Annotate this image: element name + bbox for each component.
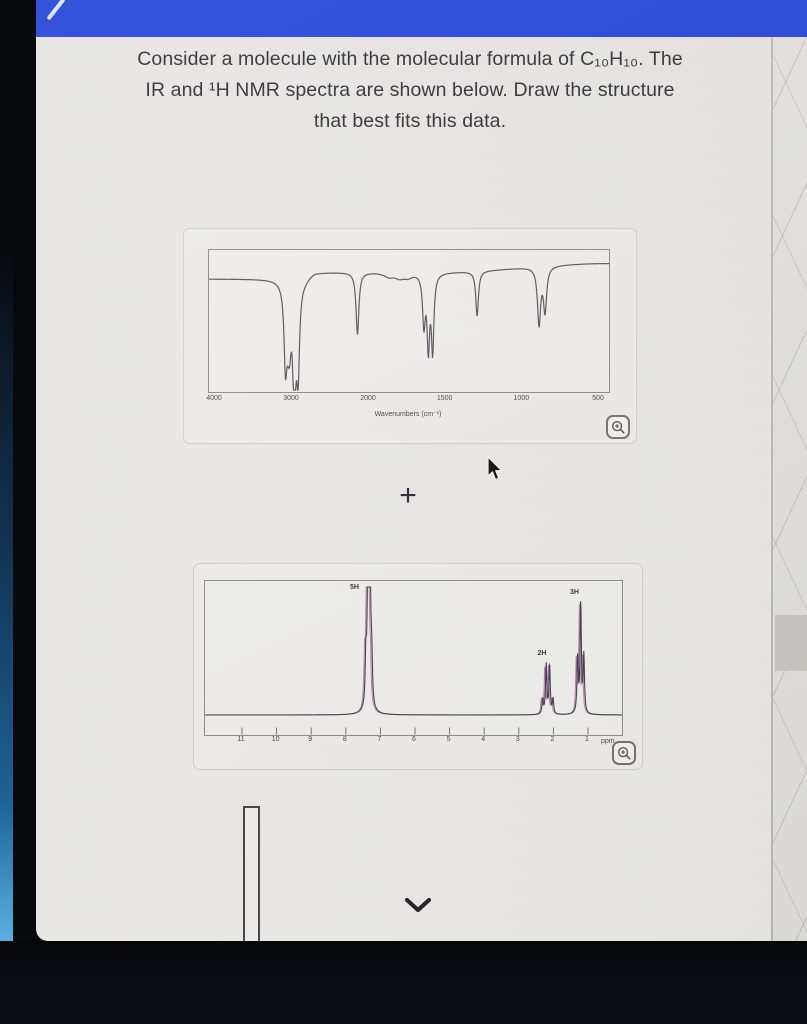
- nmr-axis-tick-label: 7: [371, 736, 387, 743]
- nmr-axis-tick-label: 2: [544, 736, 560, 743]
- photo-edge-light: [0, 240, 13, 1024]
- nmr-axis-tick-label: 6: [406, 736, 422, 743]
- ir-x-axis-title: Wavenumbers (cm⁻¹): [208, 410, 608, 418]
- right-side-rail: [771, 37, 807, 941]
- nmr-axis-tick-label: 9: [302, 736, 318, 743]
- nmr-axis-tick-label: 3: [510, 736, 526, 743]
- ir-zoom-button[interactable]: [606, 415, 630, 439]
- app-window: Consider a molecule with the molecular f…: [36, 0, 807, 941]
- ir-axis-tick-label: 3000: [277, 395, 305, 402]
- nmr-axis-tick-label: 4: [475, 736, 491, 743]
- question-line: Consider a molecule with the molecular f…: [80, 44, 740, 75]
- ir-x-axis-ticks: 40003000200015001000500: [208, 395, 608, 405]
- mouse-cursor-icon: [486, 456, 506, 483]
- magnifier-plus-icon: [616, 745, 632, 761]
- nmr-integration-label: 5H: [350, 584, 359, 591]
- plus-separator: +: [393, 481, 423, 511]
- nmr-integration-label: 2H: [537, 650, 546, 657]
- nmr-axis-tick-label: 1: [579, 736, 595, 743]
- question-line: that best fits this data.: [80, 106, 740, 137]
- ir-axis-tick-label: 500: [584, 395, 612, 402]
- nmr-axis-tick-label: 11: [233, 736, 249, 743]
- laptop-bezel: [0, 941, 807, 1024]
- nmr-integration-label: 3H: [570, 589, 579, 596]
- question-line: IR and ¹H NMR spectra are shown below. D…: [80, 75, 740, 106]
- screen-glare: [46, 0, 65, 20]
- nmr-x-axis-ticks: 1110987654321: [204, 736, 621, 746]
- magnifier-plus-icon: [610, 419, 626, 435]
- nmr-zoom-button[interactable]: [612, 741, 636, 765]
- nmr-plot-area: [204, 580, 623, 736]
- ir-plot-area: [208, 249, 610, 393]
- partially-visible-peak: [243, 806, 260, 941]
- ir-axis-tick-label: 4000: [200, 395, 228, 402]
- nmr-spectrum-card: 1110987654321 ppm 5H2H3H: [193, 563, 643, 770]
- scroll-down-chevron[interactable]: [403, 896, 433, 916]
- photographed-laptop-screen: { "question": { "lines": [ "Consider a m…: [0, 0, 807, 1024]
- top-navigation-bar: [36, 0, 807, 37]
- ir-axis-tick-label: 1000: [507, 395, 535, 402]
- ir-spectrum-card: 40003000200015001000500 Wavenumbers (cm⁻…: [183, 228, 637, 444]
- ir-axis-tick-label: 2000: [354, 395, 382, 402]
- scrollbar-thumb[interactable]: [775, 615, 807, 671]
- ir-axis-tick-label: 1500: [431, 395, 459, 402]
- nmr-axis-tick-label: 5: [441, 736, 457, 743]
- nmr-axis-tick-label: 10: [268, 736, 284, 743]
- chevron-down-icon: [403, 896, 433, 916]
- ir-spectrum-curve: [209, 250, 609, 392]
- nmr-axis-tick-label: 8: [337, 736, 353, 743]
- question-text: Consider a molecule with the molecular f…: [80, 44, 740, 137]
- nmr-spectrum-curve: [205, 581, 622, 735]
